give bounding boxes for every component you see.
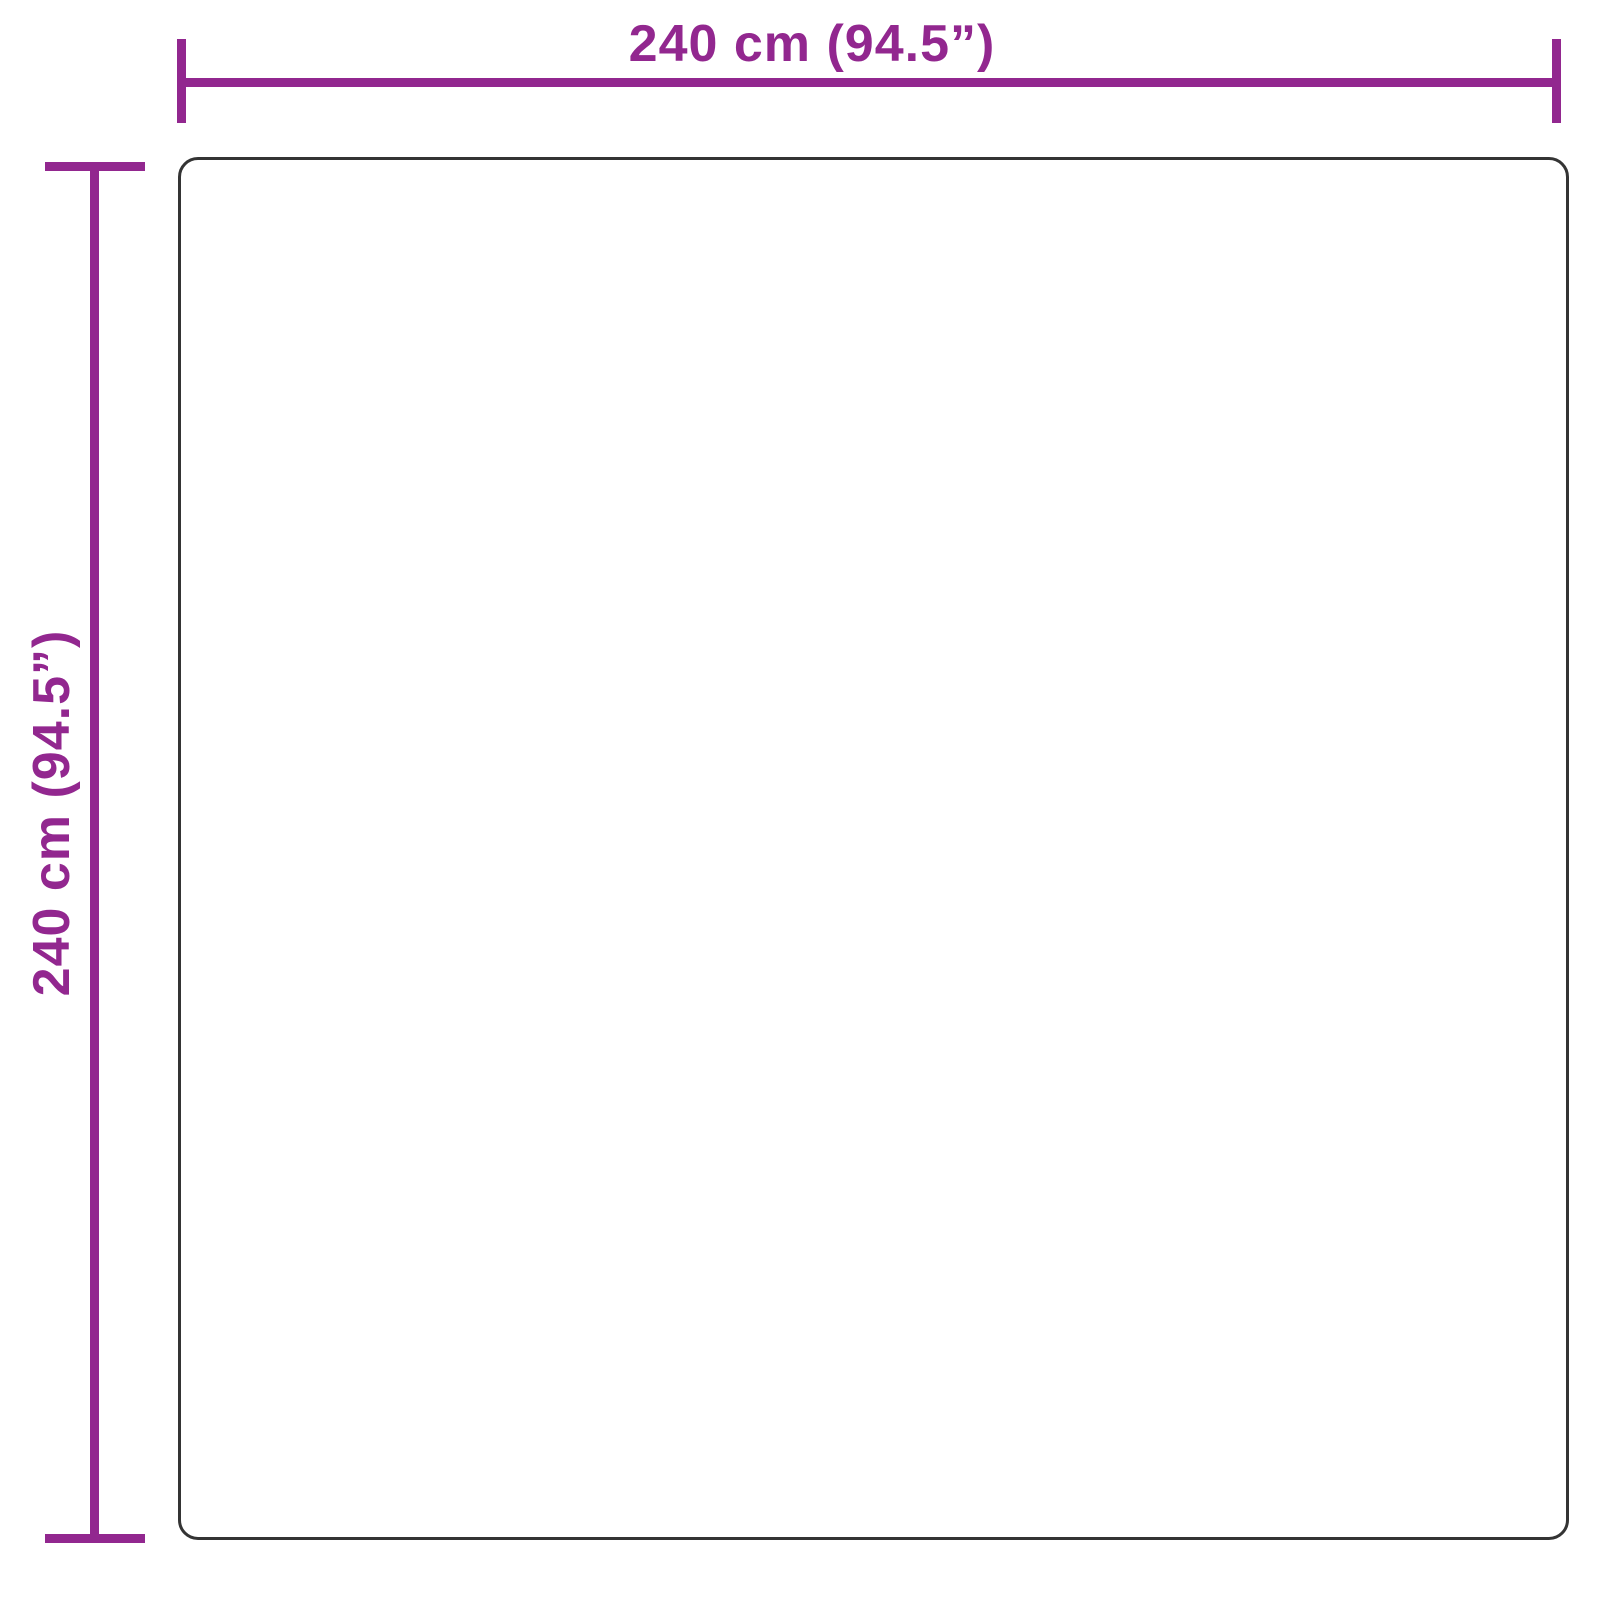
width-dimension-line — [181, 78, 1556, 87]
width-dimension-label: 240 cm (94.5”) — [629, 18, 996, 70]
width-dimension-left-tick — [177, 39, 186, 123]
dimension-diagram: 240 cm (94.5”) 240 cm (94.5”) — [0, 0, 1600, 1600]
height-dimension-line — [90, 162, 99, 1543]
product-outline — [178, 157, 1569, 1540]
height-dimension-label: 240 cm (94.5”) — [26, 630, 78, 997]
height-dimension-bottom-cap — [45, 1534, 145, 1543]
width-dimension-right-tick — [1552, 39, 1561, 123]
height-dimension-top-cap — [45, 162, 145, 171]
